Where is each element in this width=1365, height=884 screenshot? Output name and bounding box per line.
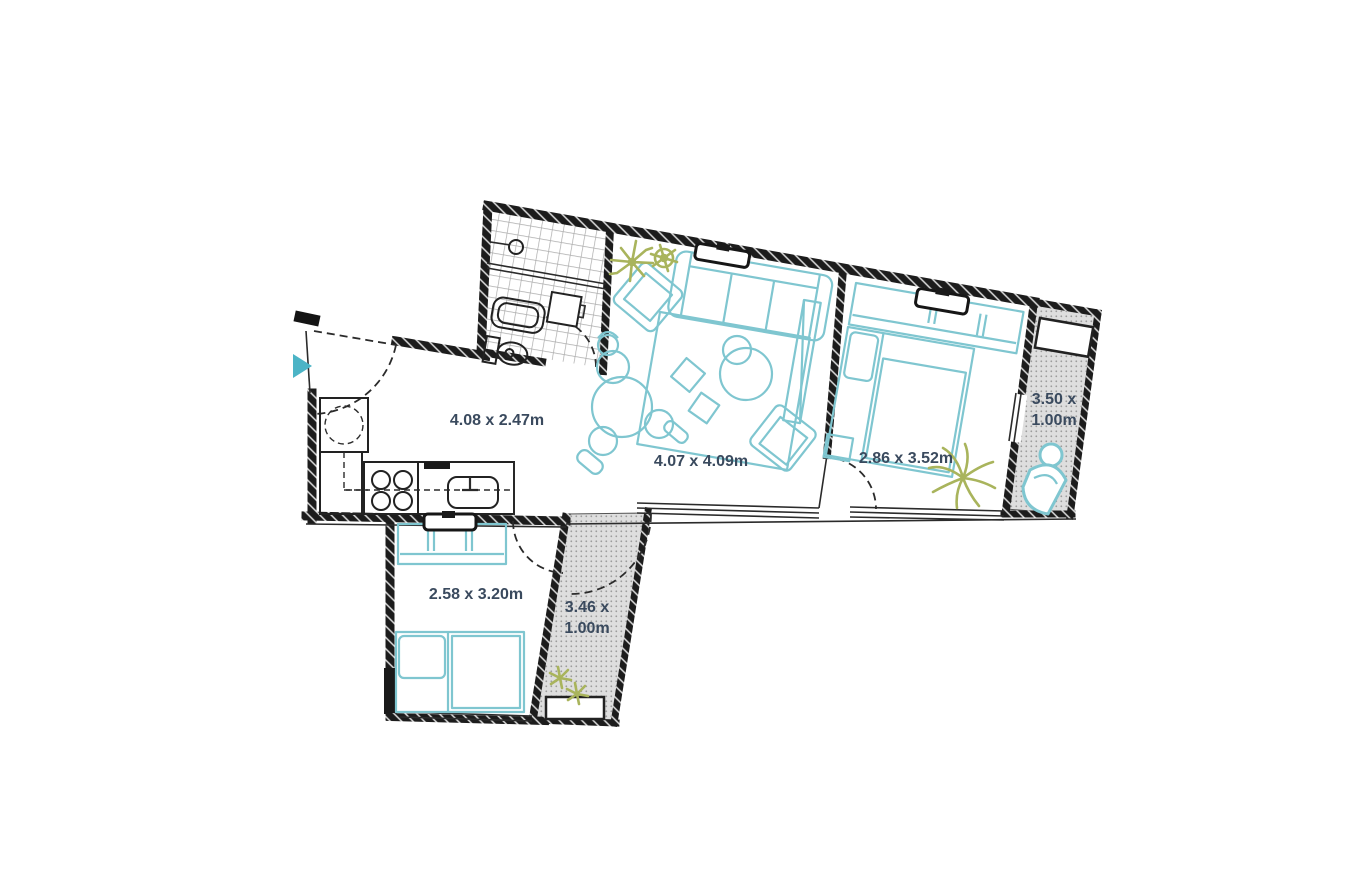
balcony-table xyxy=(1040,444,1062,466)
ottoman xyxy=(689,393,720,424)
entry-door-arc xyxy=(314,345,396,414)
living-room xyxy=(575,239,834,476)
label-balcony-bottom-1: 3.46 x xyxy=(565,599,610,616)
kitchen-cabinet xyxy=(320,452,362,514)
wall-hall-top xyxy=(396,341,486,356)
bedroom-main xyxy=(824,283,1024,508)
burner xyxy=(394,471,412,489)
floor-plan-page: 4.08 x 2.47m 4.07 x 4.09m 2.86 x 3.52m 3… xyxy=(0,0,1365,884)
wall-balcony-bottom-bottom xyxy=(535,720,616,723)
tv-bedroom-second xyxy=(424,511,476,530)
coffee-table xyxy=(720,348,772,400)
armchair xyxy=(748,403,818,473)
wall-entry-stub xyxy=(300,317,314,320)
mirror xyxy=(783,300,821,423)
entry-door-leaf xyxy=(314,331,396,345)
bed-second xyxy=(396,632,524,712)
kitchen-sink xyxy=(448,477,498,508)
counter-appliance xyxy=(424,462,450,469)
floor-plan-svg: 4.08 x 2.47m 4.07 x 4.09m 2.86 x 3.52m 3… xyxy=(0,0,1365,884)
window-living xyxy=(637,503,819,518)
kitchen-counter xyxy=(418,462,514,514)
burner xyxy=(394,492,412,510)
label-living-room: 4.07 x 4.09m xyxy=(654,453,748,470)
entry-door-frame xyxy=(306,331,310,393)
tv-living xyxy=(694,239,751,268)
ottoman xyxy=(671,358,705,392)
balcony-storage-box xyxy=(546,697,604,719)
window-bedroom-main xyxy=(850,507,1004,520)
label-bedroom-second: 2.58 x 3.20m xyxy=(429,586,523,603)
bedroom-second xyxy=(396,511,524,712)
label-balcony-right-2: 1.00m xyxy=(1031,412,1076,429)
washing-machine-drum xyxy=(325,406,363,444)
door-frame-bedroom-main xyxy=(819,455,827,508)
label-balcony-bottom-2: 1.00m xyxy=(564,620,609,637)
burner xyxy=(372,492,390,510)
label-bedroom-main: 2.86 x 3.52m xyxy=(859,450,953,467)
burner xyxy=(372,471,390,489)
sink-tap xyxy=(462,477,478,490)
pillow xyxy=(399,636,445,678)
labels: 4.08 x 2.47m 4.07 x 4.09m 2.86 x 3.52m 3… xyxy=(429,391,1077,637)
label-hall-kitchen: 4.08 x 2.47m xyxy=(450,412,544,429)
label-balcony-right-1: 3.50 x xyxy=(1032,391,1077,408)
windows xyxy=(306,393,1076,721)
flower-living xyxy=(651,245,677,271)
washing-machine xyxy=(320,398,368,452)
pillow xyxy=(843,332,878,382)
